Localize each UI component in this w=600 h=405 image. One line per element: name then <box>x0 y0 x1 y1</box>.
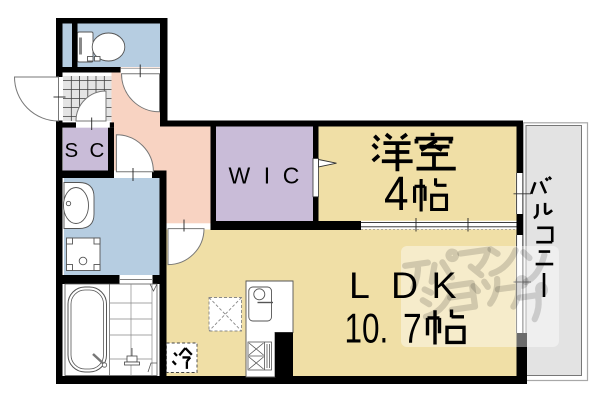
svg-text:10.: 10. <box>345 304 389 352</box>
svg-text:7: 7 <box>403 306 422 352</box>
svg-text:4: 4 <box>384 166 409 220</box>
svg-text:L: L <box>349 264 370 306</box>
svg-text:D: D <box>391 264 418 306</box>
svg-text:C: C <box>283 163 300 189</box>
svg-text:I: I <box>264 163 270 189</box>
svg-text:K: K <box>432 264 457 306</box>
svg-text:S: S <box>65 139 79 162</box>
svg-text:C: C <box>90 139 105 162</box>
svg-text:W: W <box>229 163 251 189</box>
